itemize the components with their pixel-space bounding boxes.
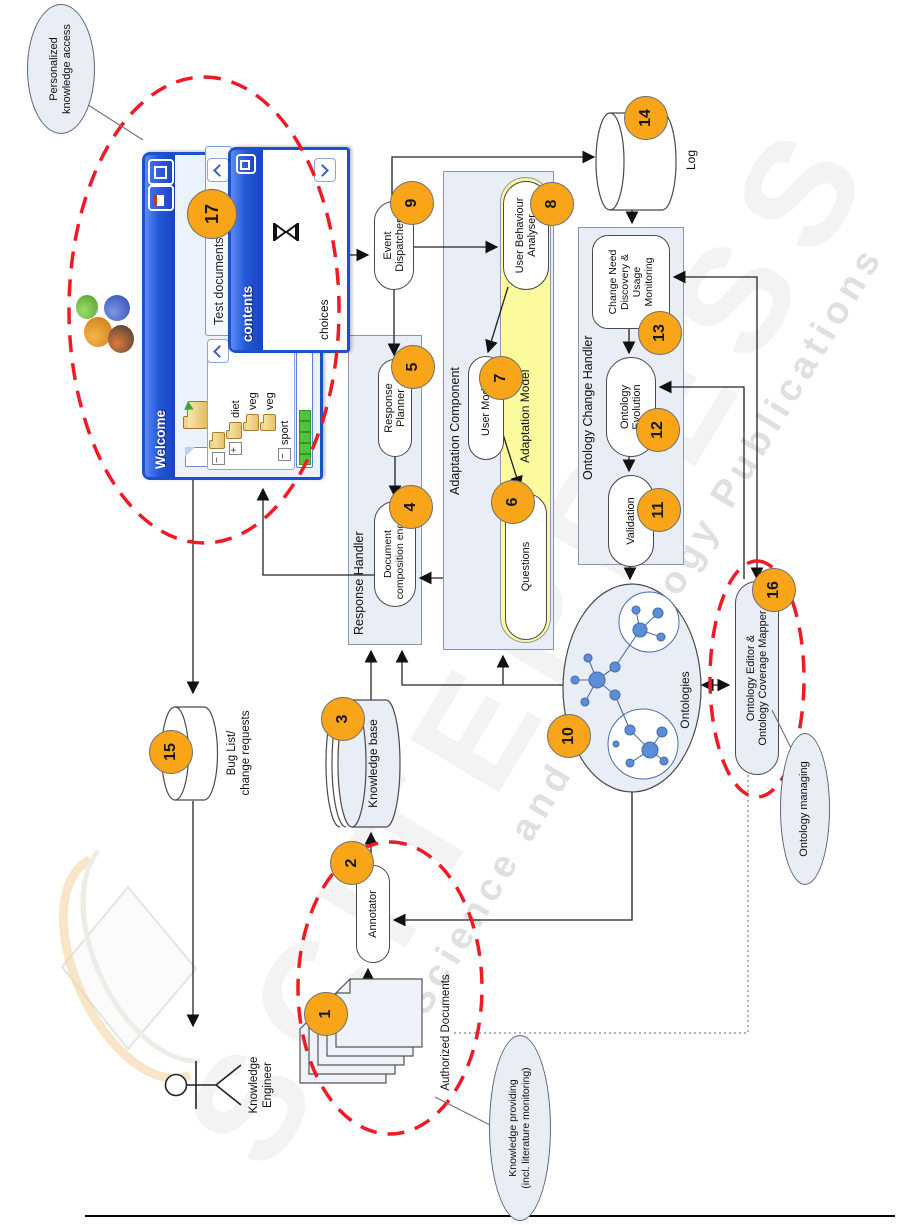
knowledge-engineer-actor <box>166 1061 242 1109</box>
contents-window: contents choices <box>228 147 350 353</box>
progress-segment <box>299 432 311 443</box>
contents-footer: choices <box>309 156 341 350</box>
questions-label: Questions <box>520 542 532 592</box>
windows-logo-icon <box>74 289 136 355</box>
maximize-glyph-icon <box>154 166 167 179</box>
log-label: Log <box>684 130 698 190</box>
callout-knowledge-providing: Knowledge providing (incl. literature mo… <box>489 1035 551 1221</box>
response-handler-label: Response Handler <box>352 531 366 635</box>
contents-title: contents <box>240 286 255 342</box>
badge-11: 11 <box>637 488 681 532</box>
tree-row-diet[interactable]: diet <box>228 400 243 455</box>
badge-8: 8 <box>530 182 574 226</box>
badge-1: 1 <box>304 992 348 1036</box>
contents-titlebar[interactable]: contents <box>231 150 263 350</box>
callout-ontology-managing: Ontology managing <box>780 733 830 885</box>
figure-canvas: SCITEPRESS Science and Technology Public… <box>0 0 901 1225</box>
contents-window-button[interactable] <box>236 154 256 174</box>
changeneed-line1: Change Need <box>607 250 619 315</box>
choices-label[interactable]: choices <box>317 299 331 340</box>
expander-minus-icon[interactable] <box>212 452 225 465</box>
folder-icon <box>263 414 276 431</box>
badge-17: 17 <box>187 189 237 239</box>
taskpane-collapse-button-right[interactable] <box>207 158 229 182</box>
tree-label-sport[interactable]: sport <box>279 421 291 445</box>
tree-row-veg1[interactable]: veg <box>245 392 260 431</box>
taskpane-collapse-button-left[interactable] <box>207 339 229 363</box>
open-folder-icon[interactable] <box>187 401 208 429</box>
ontology-managing-label: Ontology managing <box>798 761 811 856</box>
annotator-label: Annotator <box>367 890 379 938</box>
actor-line2: Engineer <box>262 1035 276 1135</box>
tree-row-root[interactable] <box>211 428 226 465</box>
bug-list-line1: Bug List/ <box>226 683 240 823</box>
response-planner-line2: Planner <box>395 389 407 427</box>
edge-editor-documents-dotted <box>452 775 748 1033</box>
tree-row-veg2[interactable]: veg <box>262 392 277 431</box>
response-planner-line1: Response <box>383 383 395 433</box>
uba-line2: Analyser <box>526 214 538 257</box>
button-glyph-icon <box>240 160 250 170</box>
progress-segment <box>299 443 311 454</box>
badge-12: 12 <box>636 408 680 452</box>
knowledge-providing-line1: Knowledge providing <box>507 1079 520 1176</box>
tree-label-veg1[interactable]: veg <box>247 392 259 410</box>
progress-bar <box>296 352 313 468</box>
badge-5: 5 <box>391 345 435 389</box>
publisher-swoosh-logo <box>62 851 200 1078</box>
folder-icon <box>246 414 259 431</box>
knowledge-engineer-label: Knowledge Engineer <box>248 1035 276 1135</box>
evolution-line1: Ontology <box>619 385 631 429</box>
badge-13: 13 <box>638 311 682 355</box>
changeneed-line4: Monitoring <box>643 257 655 306</box>
authorized-documents-label: Authorized Documents <box>440 950 454 1115</box>
ontology-editor-line2: Ontology Coverage Mapper <box>757 610 769 745</box>
changeneed-line3: Usage <box>631 267 643 297</box>
edge-ontologies-to-responsehandler <box>402 651 563 685</box>
badge-15: 15 <box>149 730 193 774</box>
edge-editor-changeneed <box>674 277 757 579</box>
hourglass-wait-icon <box>271 218 301 246</box>
actor-line1: Knowledge <box>248 1035 262 1135</box>
edge-ontologies-to-annotator <box>394 792 632 920</box>
red-ellipse-knowledge-providing <box>298 842 482 1134</box>
folder-tree-panel: diet veg veg sport <box>207 346 295 470</box>
badge-3: 3 <box>321 697 365 741</box>
knowledge-base-label: Knowledge base <box>366 701 380 826</box>
folder-up-arrow-icon <box>177 401 193 417</box>
badge-4: 4 <box>389 485 433 529</box>
test-documents-label: Test documents <box>212 237 226 325</box>
callout-personalized-knowledge-access: Personalized knowledge access <box>27 4 95 134</box>
logo-dark-blob <box>108 325 134 353</box>
ontology-editor-line1: Ontology Editor & <box>745 635 757 721</box>
adaptation-component-label: Adaptation Component <box>448 367 462 495</box>
window-button-close[interactable] <box>148 185 174 211</box>
tree-label-veg2[interactable]: veg <box>264 392 276 410</box>
window-button-maximize[interactable] <box>148 159 174 185</box>
leader-personalized <box>85 103 143 140</box>
uba-line1: User Behaviour <box>514 198 526 274</box>
ontology-change-handler-label: Ontology Change Handler <box>581 335 595 480</box>
choices-expand-button[interactable] <box>314 158 336 182</box>
badge-10: 10 <box>547 714 591 758</box>
contents-body <box>263 156 310 350</box>
personalized-line1: Personalized <box>48 37 61 101</box>
logo-blue-blob <box>104 295 130 321</box>
knowledge-providing-line2: (incl. literature monitoring) <box>520 1067 533 1188</box>
tree-row-sport[interactable]: sport <box>277 421 292 461</box>
badge-9: 9 <box>390 181 434 225</box>
changeneed-line2: Discovery & <box>619 254 631 310</box>
personalized-line2: knowledge access <box>61 24 74 114</box>
expander-plus-icon[interactable] <box>229 442 242 455</box>
tree-label-diet[interactable]: diet <box>230 400 242 418</box>
bug-list-line2: change requests <box>240 683 254 823</box>
logo-green-blob <box>76 295 98 319</box>
bug-list-label: Bug List/ change requests <box>226 683 254 823</box>
badge-7: 7 <box>479 356 523 400</box>
event-dispatcher-line2: Dispatcher <box>394 219 406 272</box>
folder-icon <box>229 422 242 439</box>
badge-14: 14 <box>624 96 668 140</box>
folder-icon <box>212 432 225 449</box>
progress-segment <box>299 410 311 421</box>
page: { "watermark": { "big": "SCITEPRESS", "s… <box>0 0 901 1225</box>
progress-segment <box>299 421 311 432</box>
badge-6: 6 <box>491 480 535 524</box>
welcome-titlebar[interactable]: Welcome <box>145 155 175 477</box>
event-dispatcher-line1: Event <box>382 231 394 259</box>
expander-minus-icon[interactable] <box>278 448 291 461</box>
badge-2: 2 <box>330 841 374 885</box>
validation-label: Validation <box>625 497 637 545</box>
welcome-title: Welcome <box>153 410 168 469</box>
ontologies-label: Ontologies <box>678 655 692 745</box>
badge-16: 16 <box>752 568 796 612</box>
progress-segment <box>299 454 311 465</box>
close-glyph-icon <box>153 195 164 206</box>
